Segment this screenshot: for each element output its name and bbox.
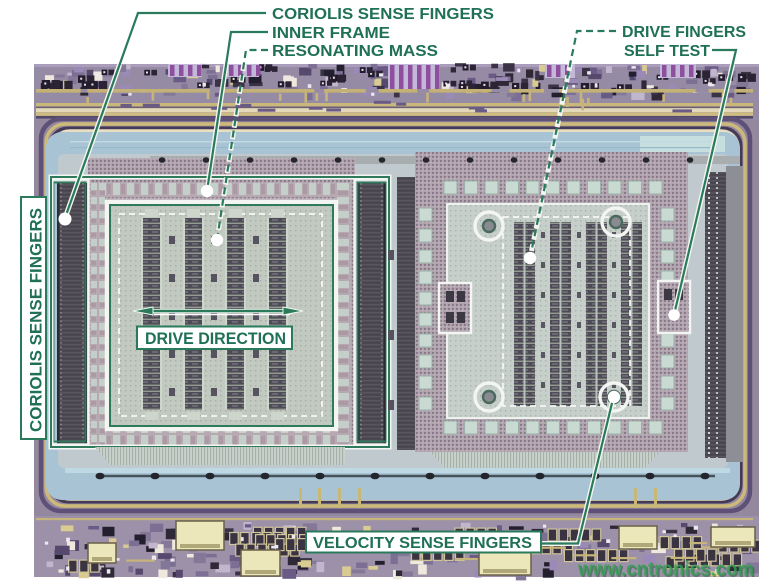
svg-text:CORIOLIS SENSE FINGERS: CORIOLIS SENSE FINGERS bbox=[272, 6, 494, 23]
svg-text:CORIOLIS SENSE FINGERS: CORIOLIS SENSE FINGERS bbox=[28, 208, 46, 432]
svg-text:VELOCITY SENSE FINGERS: VELOCITY SENSE FINGERS bbox=[313, 535, 532, 552]
svg-text:RESONATING MASS: RESONATING MASS bbox=[272, 43, 438, 60]
svg-text:DRIVE DIRECTION: DRIVE DIRECTION bbox=[145, 329, 286, 348]
svg-text:DRIVE FINGERS: DRIVE FINGERS bbox=[622, 24, 746, 41]
svg-text:SELF TEST: SELF TEST bbox=[624, 43, 711, 60]
svg-text:www.cntronics.com: www.cntronics.com bbox=[577, 559, 754, 581]
svg-text:INNER FRAME: INNER FRAME bbox=[272, 25, 390, 42]
